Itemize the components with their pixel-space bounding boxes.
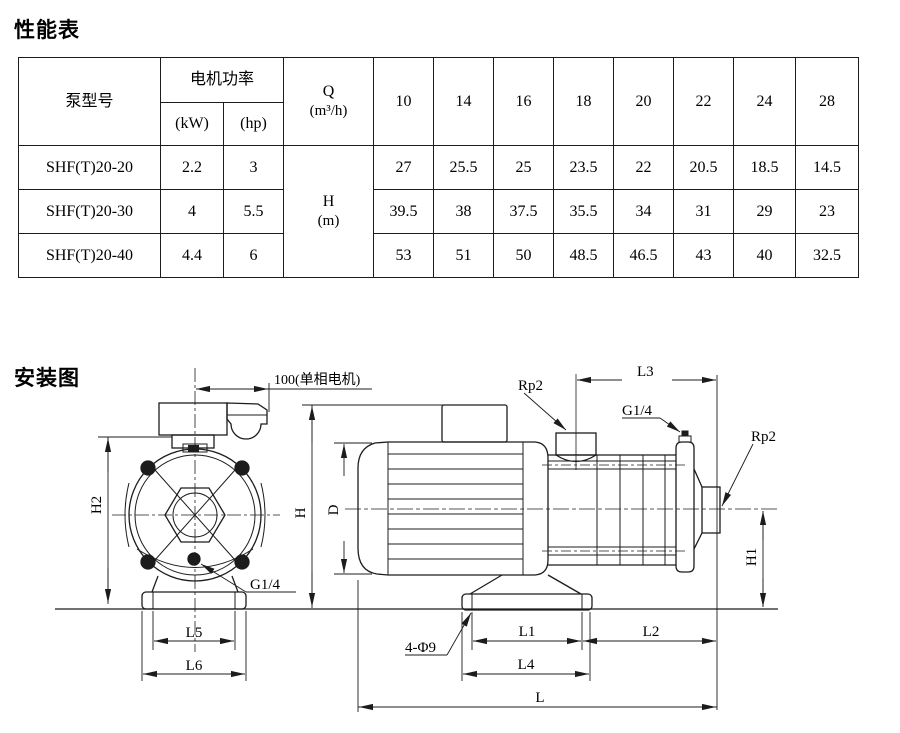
dim-label-h: H [293,507,309,518]
dim-label-l3: L3 [637,364,654,380]
dim-label-l: L [535,690,544,706]
dim-label-rp2-top: Rp2 [518,378,543,394]
dim-label-h1: H1 [744,548,760,566]
dim-label-rp2-right: Rp2 [751,429,776,445]
side-view-drawing [345,374,778,610]
dim-label-g14-vent: G1/4 [622,403,653,419]
dim-label-bolt-holes: 4-Φ9 [405,640,436,656]
installation-drawing: 100(单相电机) Rp2 L3 G1/4 Rp2 H2 H D H1 G1/4… [0,0,900,733]
dim-label-l4: L4 [518,657,535,673]
dim-label-h2: H2 [89,496,105,514]
dim-label-l5: L5 [186,625,203,641]
dim-label-l2: L2 [643,624,660,640]
dim-label-d: D [326,504,342,515]
dim-label-motor-offset: 100(单相电机) [274,372,361,388]
dim-label-g14-drain: G1/4 [250,577,281,593]
datasheet-page: 性能表 泵型号 电机功率 Q (m³/h) 10 14 16 18 20 22 … [0,0,900,733]
dim-label-l1: L1 [519,624,536,640]
dim-label-l6: L6 [186,658,203,674]
